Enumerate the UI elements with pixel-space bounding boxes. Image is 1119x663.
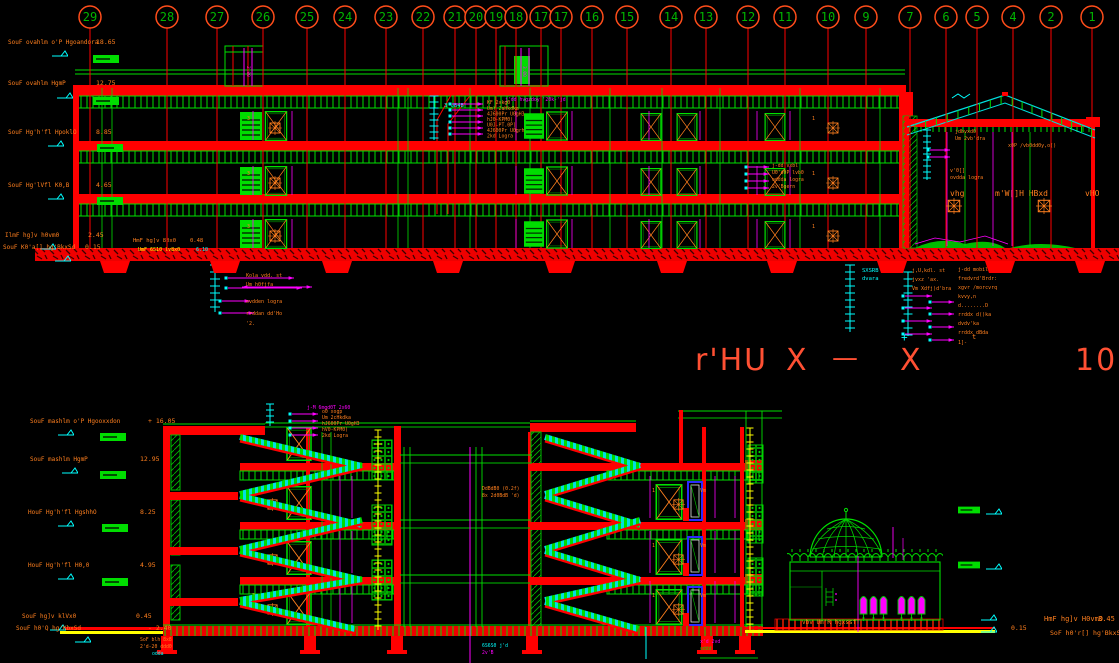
floor-mark: Vm — [700, 543, 706, 549]
dimension-square — [672, 553, 685, 566]
note-row: 2kd Logra — [487, 134, 513, 140]
door-x-panel — [656, 485, 681, 519]
floor-mark: 1 — [812, 171, 815, 177]
grid-bubble-number: 25 — [300, 10, 314, 24]
arched-window — [880, 597, 887, 622]
level-value: 4.95 — [140, 561, 156, 569]
grid-bubble-number: 20 — [469, 10, 483, 24]
grid-bubble-number: 13 — [699, 10, 713, 24]
roof-slab — [75, 85, 905, 96]
level-flag-marker — [58, 521, 74, 526]
section-title: r'HU X — X 100 + t — [695, 331, 1119, 378]
foundation-pad — [100, 261, 130, 273]
level-value: 12.75 — [96, 79, 116, 87]
title-axis-right: X — [900, 343, 923, 378]
legend-row: Um h0fjfa — [246, 282, 273, 288]
door-x-panel — [677, 114, 697, 141]
level-box-marker — [958, 562, 980, 569]
door-x-panel — [765, 114, 785, 141]
note-row: hJ0-KPM0) — [487, 117, 513, 123]
level-flag-marker — [48, 141, 64, 146]
penthouse-dim-1: 2.80 — [245, 66, 251, 77]
tiny-note: 6S6S0 j'd — [482, 643, 508, 649]
foundation-legends: Kola vdd. stUm h0fjfaovdden lograrrddan … — [210, 265, 1012, 346]
tiny-note: 2v'B — [482, 650, 494, 656]
floor-mark: 3 — [247, 171, 250, 177]
note-row: hV0-KPM0) — [322, 427, 348, 433]
stair-flight — [545, 437, 640, 466]
corner-value-1: 3.45 — [1098, 615, 1115, 623]
stair-note: DdBdB0 (0.2f) — [482, 486, 520, 492]
grid-bubble-number: 24 — [338, 10, 352, 24]
legend-row: 1]- — [958, 340, 967, 346]
arched-window — [898, 597, 905, 622]
level-label: SouF mashlm o'P Hgooxxdon — [30, 418, 121, 425]
note-row: U0J-PT.0P] — [487, 123, 516, 129]
level-flag-marker — [62, 468, 78, 473]
grid-bubble-number: 29 — [83, 10, 97, 24]
note-row: KF 2xkg0 — [487, 100, 510, 106]
title-axis-left: X — [786, 343, 809, 378]
note-row: 4J600Pr U0grh — [487, 128, 525, 134]
dimension-square — [946, 198, 962, 214]
hall-label-left: vhg — [950, 189, 965, 198]
level-value: 12.95 — [140, 455, 160, 463]
level-label: SouF Hg'h'fl HpoklO — [8, 129, 77, 136]
level-value: 0.45 — [136, 612, 152, 620]
level-flag-marker — [52, 51, 68, 56]
dimension-square — [268, 176, 282, 190]
level-box-marker — [102, 578, 128, 586]
legend-row: dvdv'ka — [958, 321, 979, 327]
legend-row: Kola vdd. st — [246, 273, 282, 279]
grid-bubble-number: 12 — [741, 10, 755, 24]
grid-bubble-number: 7 — [906, 10, 913, 24]
dome-finial — [844, 508, 847, 511]
grid-bubble-number: 27 — [210, 10, 224, 24]
hall-section — [899, 92, 1100, 248]
penthouse-dim-2: 3.00 — [521, 66, 527, 77]
door-x-panel — [765, 222, 785, 249]
arched-window — [918, 597, 925, 622]
ground-note-l1: HmF hg]v 80x0 — [133, 238, 176, 244]
arched-window — [908, 597, 915, 622]
arched-window — [870, 597, 877, 622]
floor-mark: Vm — [700, 488, 706, 494]
floor-mark: 1 — [652, 593, 655, 599]
door-x-panel — [656, 590, 681, 624]
floor-mark: 3 — [247, 224, 250, 230]
ground-note-v2: 6.10 — [196, 247, 208, 253]
survey-mark — [952, 94, 970, 98]
floor-mark: 1 — [652, 488, 655, 494]
door-x-panel — [677, 222, 697, 249]
dimension-square — [826, 229, 840, 243]
stair-landing — [163, 492, 238, 500]
door-x-panel — [677, 169, 697, 196]
level-flag-marker — [48, 194, 64, 199]
grid-bubble-number: 17 — [534, 10, 548, 24]
level-label: SouF ovahlm HgmP — [8, 80, 66, 87]
level-label: SouF ovahlm o'P Hgoandora — [8, 39, 99, 46]
note-row: U0'd0P lvb0 — [772, 170, 804, 176]
right-level-markers — [958, 507, 1002, 632]
tiny-note: 2'd-20 ddd0 — [140, 644, 172, 650]
level-label: SouF h0'Q hg'KbxSd — [16, 625, 81, 632]
legend-row: Vm Xdfj)d'bra — [912, 286, 951, 292]
foundation-pedestal — [526, 636, 538, 650]
cabinet — [240, 167, 262, 195]
level-flag-marker — [986, 509, 1002, 514]
left-wall — [73, 85, 79, 250]
level-box-marker — [102, 524, 128, 532]
floor-mark: 1 — [812, 224, 815, 230]
hall-note: jdbvxd0 — [955, 129, 976, 135]
tiny-note: x'd 2vd — [700, 639, 720, 645]
legend-cyan: dvara — [862, 276, 879, 282]
level-box-marker — [93, 55, 119, 63]
corner-level-labels: HmF hg]v H0vm0 3.45 SoF h0'r[] hg'BkxSd — [1044, 615, 1119, 637]
level-label: IlmF hg]v h0vm0 — [5, 232, 60, 239]
corner-label-1: HmF hg]v H0vm0 — [1044, 615, 1103, 623]
level-flag-marker — [75, 637, 91, 642]
note-magenta: j'dd hvgzdoy '20k-'jd — [505, 97, 566, 103]
door-x-panel — [641, 222, 661, 249]
level-value: 18.65 — [96, 38, 116, 46]
door-x-panel — [641, 114, 661, 141]
legend-row: rrddx d()ka — [958, 312, 991, 318]
level-value: 2.45 — [88, 231, 104, 239]
tiny-note: SoF blh 8x8 — [140, 637, 172, 643]
grid-bubble-number: 18 — [509, 10, 523, 24]
legend-row: '2. — [246, 321, 255, 327]
level-flag-marker — [986, 564, 1002, 569]
grid-bubble-number: 16 — [585, 10, 599, 24]
dimension-square — [826, 176, 840, 190]
grid-bubble-number: 4 — [1009, 10, 1016, 24]
foundation-pad — [210, 261, 240, 273]
level-label: SouF K0'a[] hg'BkxSd — [3, 244, 76, 251]
foundation-pad — [657, 261, 687, 273]
legend-row: jvxz 'ax. — [912, 277, 939, 283]
hall-note: v'0[] — [950, 168, 965, 174]
hall-note: Um 2vb'dra — [955, 136, 985, 142]
floor2-slab — [75, 141, 905, 151]
note-row: Um 2cHkdka — [322, 415, 351, 421]
level-flag-marker — [58, 574, 74, 579]
grid-bubble-number: 19 — [489, 10, 503, 24]
level-flag-marker — [981, 615, 997, 620]
level-label: HouF Hg'h'fl HgshhO — [28, 509, 97, 516]
level-label: HouF Hg'h'fl H0,0 — [28, 562, 90, 569]
level-box-marker — [100, 471, 126, 479]
grid-bubble-number: 6 — [942, 10, 949, 24]
grid-bubble-number: 26 — [256, 10, 270, 24]
dimension-square — [826, 121, 840, 135]
ground-note-l2: UmF 6S10 lv8x0 — [138, 247, 180, 253]
grid-bubble-number: 21 — [448, 10, 462, 24]
arched-window — [860, 597, 867, 622]
door-x-panel — [656, 540, 681, 574]
level-flag-marker — [58, 430, 74, 435]
title-scale: 100 — [1075, 343, 1119, 378]
level-value: - 2.40 — [148, 624, 172, 632]
dimension-square — [672, 603, 685, 616]
level-annotations: SouF ovahlm o'P Hgoandora18.65SouF ovahl… — [3, 38, 175, 642]
foundation-pad — [767, 261, 797, 273]
dimension-square — [268, 229, 282, 243]
cad-drawing-canvas[interactable]: 2.80 3.00 r'HU X — X 100 + t — [0, 0, 1119, 663]
note-row: hJ600Pr U0gH3 — [322, 421, 360, 427]
drawing-svg: 2.80 3.00 r'HU X — X 100 + t — [0, 0, 1119, 663]
level-label: SouF mashlm HgmP — [30, 456, 88, 463]
legend-row: d........D — [958, 303, 988, 309]
foundation-pad — [877, 261, 907, 273]
title-section-word: r'HU — [695, 343, 768, 378]
grid-bubble-number: 23 — [379, 10, 393, 24]
note-row: o0 xogp — [322, 409, 342, 415]
hall-left-column — [905, 116, 909, 248]
level-value: 0.15 — [85, 243, 101, 251]
foundation-pedestal — [739, 636, 751, 650]
cabinet — [524, 168, 544, 193]
level-label: SouF Hg'lVfl K0,B — [8, 182, 70, 189]
grid-bubble-number: 22 — [416, 10, 430, 24]
foundation-pad — [322, 261, 352, 273]
doors-and-windows: 13131331Vm31Vm31Vm — [240, 111, 1012, 626]
door-x-panel — [265, 167, 286, 196]
cabinet — [524, 221, 544, 246]
corner-label-2: SoF h0'r[] hg'BkxSd — [1050, 629, 1119, 637]
door-x-panel — [547, 167, 568, 195]
legend-row: fredvrd'Brdr: — [958, 276, 997, 282]
grid-bubble-number: 10 — [821, 10, 835, 24]
hall-note: ovdda logra — [950, 175, 983, 181]
level-box-marker — [93, 97, 119, 105]
mosque-door-detail — [826, 588, 837, 606]
hall-label-mid: m'W[]H HBxd — [995, 189, 1048, 198]
level-box-marker — [97, 144, 123, 152]
note-row: 2v'Bgern — [772, 184, 795, 190]
legend-row: kvvy,n — [958, 294, 976, 300]
legend-cyan: SXSRB — [862, 268, 879, 274]
note-row: Um) 2aHkdka — [487, 106, 519, 112]
stair-flight — [545, 551, 640, 580]
mosque-base-note: vbv Um'R hgxssfT — [802, 619, 860, 626]
upper-building-section: 2.80 3.00 — [35, 46, 1119, 261]
legend-row: rrddx dBda — [958, 330, 988, 336]
grid-bubble-number: 5 — [973, 10, 980, 24]
truss-apex — [1002, 92, 1008, 96]
note-row: 4J600Pr U0gH3 — [487, 112, 525, 118]
door-x-panel — [547, 220, 568, 248]
stair-stringer — [545, 469, 640, 498]
roof-penthouse-1 — [225, 46, 263, 86]
cabinet — [240, 112, 262, 140]
door-x-panel — [265, 220, 286, 249]
note-row: oddda logra — [772, 177, 804, 183]
floor-mark: 1 — [652, 543, 655, 549]
level-value: + 16.05 — [148, 417, 175, 425]
ground-note: HmF hg]v 80x0 0.48 UmF 6S10 lv8x0 6.10 — [133, 238, 208, 253]
note-row: 2kd Logra — [322, 433, 348, 439]
dimension-square — [268, 121, 282, 135]
grid-bubble-number: 28 — [160, 10, 174, 24]
level-value: 4.65 — [96, 181, 112, 189]
dimension-square — [672, 498, 685, 511]
grid-bubble-number: 2 — [1047, 10, 1054, 24]
stair-flight — [545, 496, 640, 525]
door-x-panel — [641, 169, 661, 196]
tiny-note: odda — [152, 651, 164, 657]
foundation-pedestal — [304, 636, 316, 650]
foundation-pad — [433, 261, 463, 273]
stair-landing — [163, 598, 238, 606]
floor-mark: 1 — [812, 116, 815, 122]
grid-bubble-number: 1 — [1088, 10, 1095, 24]
door-x-panel — [265, 112, 286, 141]
grid-bubble-number: 14 — [664, 10, 678, 24]
level-value: 8.85 — [96, 128, 112, 136]
grid-bubble-number: 17 — [554, 10, 568, 24]
note-row: j-dd vxbl — [772, 163, 798, 169]
ground-note-v1: 0.48 — [190, 238, 203, 244]
mosque-level-value: 0.15 — [1011, 624, 1027, 632]
cabinet — [240, 220, 262, 248]
level-box-marker — [100, 433, 126, 441]
right-tower-roof-slab — [530, 423, 636, 432]
foundation-pad — [545, 261, 575, 273]
floor-mark: 3 — [247, 116, 250, 122]
level-box-marker — [97, 197, 123, 205]
legend-row: ovdden logra — [246, 299, 282, 305]
grid-bubble-number: 9 — [862, 10, 869, 24]
title-dash: — — [832, 343, 860, 373]
level-box-marker — [958, 507, 980, 514]
foundation-pad — [1075, 261, 1105, 273]
left-tower-roof-slab — [163, 426, 265, 435]
stair-note: 8x 2d0BdB 'd) — [482, 493, 520, 499]
level-label: SouF hg]v klVx0 — [22, 613, 77, 620]
mosque-windows — [860, 597, 925, 622]
floor-mark: Vm — [700, 593, 706, 599]
level-flag-marker — [57, 93, 73, 98]
legend-row: xgvr /morcvrq — [958, 285, 997, 291]
hall-note: x0P /vb0dd0y,o() — [1008, 143, 1056, 149]
legend-row: rrddan dd'Ho — [246, 311, 282, 317]
dimension-square — [1036, 198, 1052, 214]
hall-labels: vhg m'W[]H HBxd vHO — [950, 189, 1100, 198]
stair-landing — [163, 547, 238, 555]
foundation-pedestal — [391, 636, 403, 650]
door-x-panel — [547, 112, 568, 140]
cabinet — [524, 113, 544, 138]
foundation-pad — [985, 261, 1015, 273]
grid-bubble-number: 15 — [620, 10, 634, 24]
tiny-note: oddd — [700, 646, 712, 652]
legend-row: j,U,kdl. st — [912, 268, 945, 274]
level-value: 8.25 — [140, 508, 156, 516]
grid-bubble-number: 11 — [778, 10, 792, 24]
